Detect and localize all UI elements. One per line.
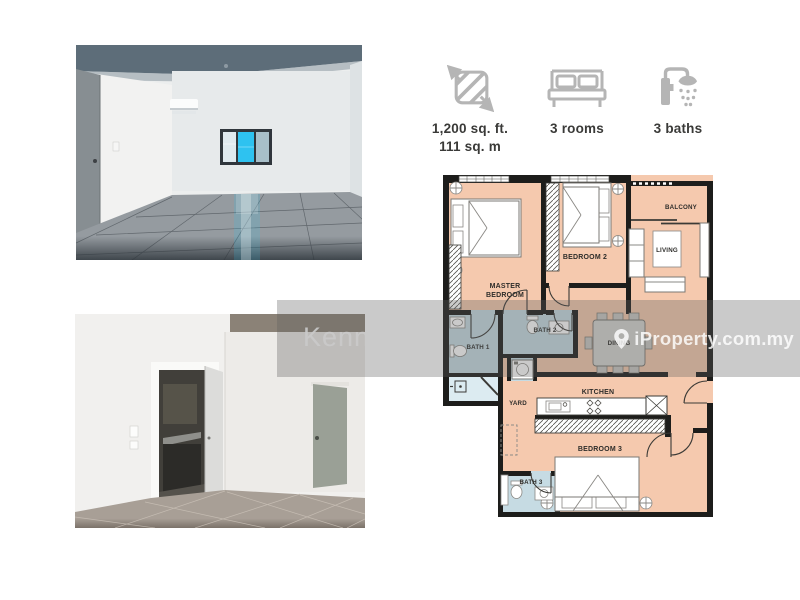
label-bedroom2: BEDROOM 2 [563,254,607,261]
stat-rooms: 3 rooms [523,58,631,138]
label-yard: YARD [509,400,527,407]
stat-baths-label: 3 baths [624,120,732,138]
label-bath3: BATH 3 [519,479,542,486]
label-balcony: BALCONY [665,204,698,211]
label-master-bedroom-2: BEDROOM [486,292,524,299]
stat-area: 1,200 sq. ft. 111 sq. m [416,58,524,155]
bedroom2-wardrobe [546,183,559,271]
brand-watermark: iProperty.com.my [614,328,794,350]
label-kitchen: KITCHEN [582,389,615,396]
listing-photo-collage: Kenn 1,200 sq. ft. 111 sq. m [0,0,800,600]
stat-rooms-label: 3 rooms [523,120,631,138]
stat-area-ft: 1,200 sq. ft. [416,120,524,138]
brand-watermark-text: iProperty.com.my [634,328,794,350]
stat-baths: 3 baths [624,58,732,138]
window [220,129,272,165]
bedroom3-wardrobe [535,419,665,433]
shower-icon [624,58,732,112]
master-bed [451,199,521,257]
air-conditioner [170,99,198,114]
label-master-bedroom: MASTER [490,283,521,290]
label-living: LIVING [656,247,678,254]
area-measure-icon [416,58,524,112]
tv-console [700,223,709,277]
photo-room-1[interactable] [76,45,362,260]
photo-room-1-image [76,45,362,260]
bedroom2-bed [563,183,611,247]
bathroom-doorway [151,362,223,510]
bed-icon [523,58,631,112]
label-bedroom3: BEDROOM 3 [578,446,622,453]
kitchen-counter [537,396,667,415]
stat-area-m: 111 sq. m [416,138,524,156]
watermark-band: iProperty.com.my [277,300,800,377]
entrance-door [311,382,349,488]
bedroom3-bed [555,457,639,511]
map-pin-icon [614,329,629,349]
fridge-box [646,396,667,415]
